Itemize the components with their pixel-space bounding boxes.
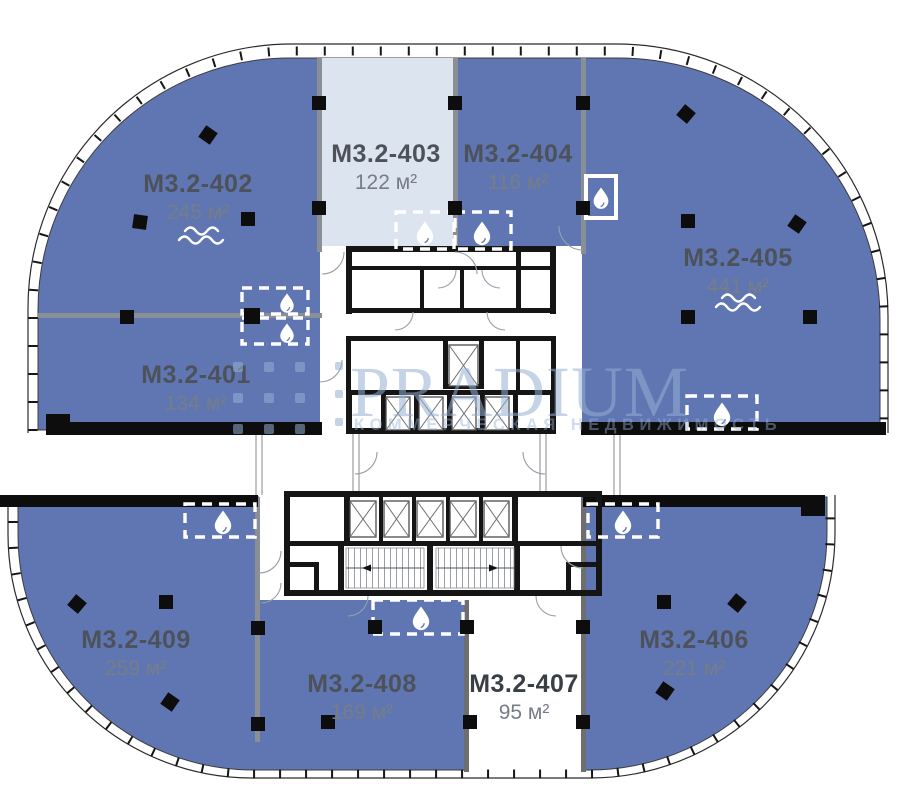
unit-label-m32-405: M3.2-405 441 м² (683, 245, 793, 299)
unit-id: M3.2-407 (469, 671, 579, 698)
unit-label-m32-404: M3.2-404 116 м² (463, 141, 573, 195)
unit-area: 122 м² (331, 172, 441, 195)
unit-label-m32-403: M3.2-403 122 м² (331, 141, 441, 195)
unit-area: 169 м² (307, 702, 417, 725)
unit-id: M3.2-406 (639, 627, 749, 654)
unit-label-m32-409: M3.2-409 259 м² (81, 627, 191, 681)
unit-area: 441 м² (683, 276, 793, 299)
unit-area: 221 м² (639, 658, 749, 681)
unit-id: M3.2-409 (81, 627, 191, 654)
unit-region-m32-405[interactable] (586, 58, 878, 420)
unit-label-m32-402: M3.2-402 245 м² (143, 171, 253, 225)
unit-area: 134 м² (141, 393, 251, 416)
unit-label-m32-401: M3.2-401 134 м² (141, 362, 251, 416)
unit-id: M3.2-402 (143, 171, 253, 198)
unit-id: M3.2-404 (463, 141, 573, 168)
floor-plan-canvas (0, 0, 903, 804)
unit-area: 259 м² (81, 658, 191, 681)
gap-connector-walls (256, 434, 620, 495)
unit-label-m32-406: M3.2-406 221 м² (639, 627, 749, 681)
unit-area: 116 м² (463, 172, 573, 195)
unit-id: M3.2-403 (331, 141, 441, 168)
unit-id: M3.2-408 (307, 671, 417, 698)
unit-label-m32-408: M3.2-408 169 м² (307, 671, 417, 725)
unit-id: M3.2-401 (141, 362, 251, 389)
unit-id: M3.2-405 (683, 245, 793, 272)
unit-area: 95 м² (469, 702, 579, 725)
floor-plan: M3.2-401 134 м² M3.2-402 245 м² M3.2-403… (0, 0, 903, 804)
unit-label-m32-407: M3.2-407 95 м² (469, 671, 579, 725)
unit-area: 245 м² (143, 202, 253, 225)
